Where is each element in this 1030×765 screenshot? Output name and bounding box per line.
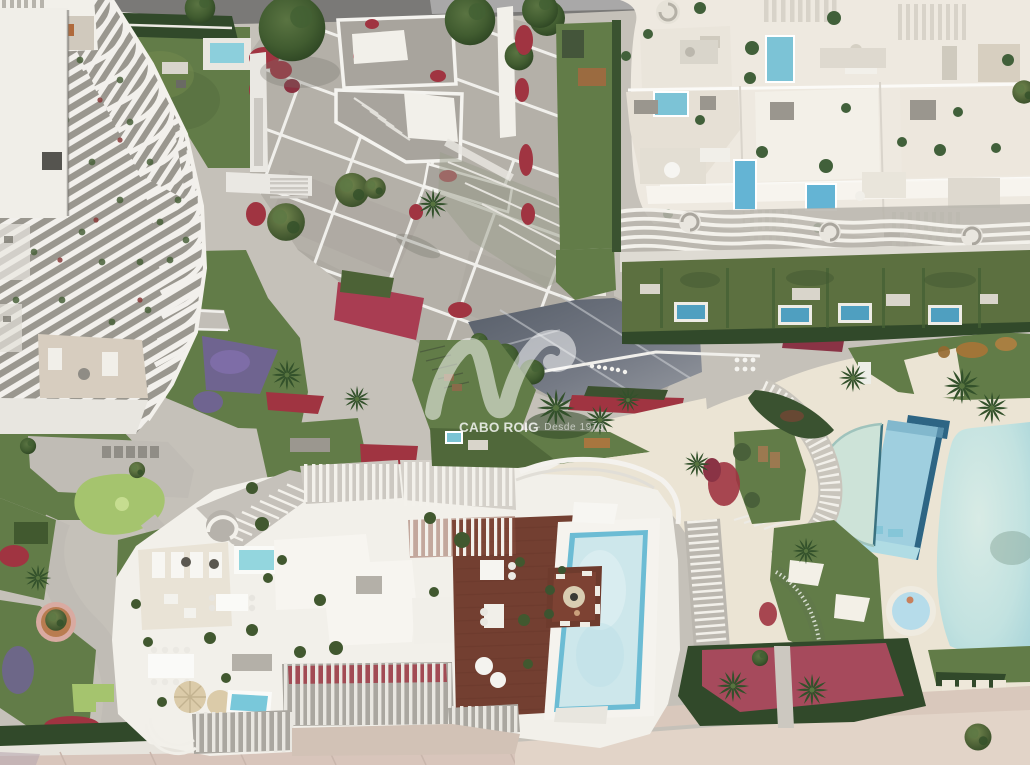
svg-text:CABO ROIG: CABO ROIG xyxy=(459,420,539,435)
svg-text:- Desde 1970: - Desde 1970 xyxy=(537,422,604,433)
